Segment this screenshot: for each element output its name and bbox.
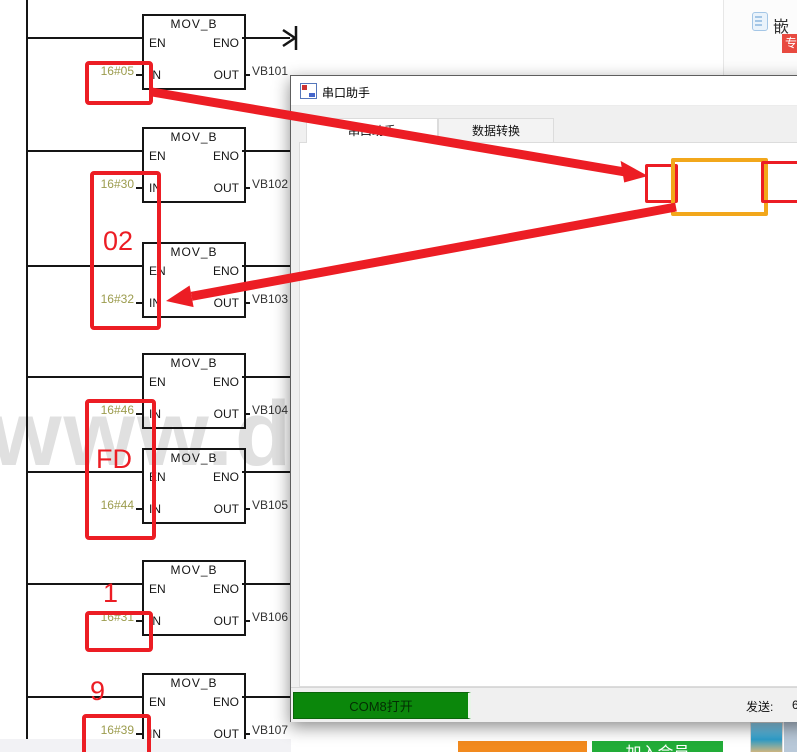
out-pin: OUT [214,502,239,516]
page: www.doc MOV_B EN ENO IN OUT 16#05 VB101 … [0,0,797,752]
dialog-titlebar[interactable]: 串口助手 [291,76,797,106]
join-member-button[interactable]: 加入会员 [592,741,723,752]
out-pin: OUT [214,181,239,195]
rung-wire [26,265,143,267]
in-wire [136,620,142,622]
photo-thumbnail[interactable] [750,722,783,752]
block-title: MOV_B [144,451,244,465]
rung-wire [26,471,143,473]
input-constant[interactable]: 16#31 [58,610,134,624]
block-title: MOV_B [144,245,244,259]
power-rail [26,0,28,739]
input-constant[interactable]: 16#44 [58,498,134,512]
output-operand[interactable]: VB104 [252,403,288,417]
bottom-page-strip [0,739,291,752]
rung-wire [26,583,143,585]
block-title: MOV_B [144,356,244,370]
eno-wire [242,376,290,378]
in-pin: IN [149,614,161,628]
in-wire [136,74,142,76]
input-constant[interactable]: 16#39 [58,723,134,737]
out-wire [244,302,250,304]
in-pin: IN [149,296,161,310]
output-operand[interactable]: VB101 [252,64,288,78]
eno-pin: ENO [213,264,239,278]
mov-b-block[interactable]: MOV_B EN ENO IN OUT [142,560,246,636]
orange-action-button[interactable] [458,741,587,752]
eno-wire [242,265,290,267]
block-title: MOV_B [144,676,244,690]
en-pin: EN [149,36,166,50]
output-operand[interactable]: VB105 [252,498,288,512]
eno-wire [242,696,290,698]
in-wire [136,413,142,415]
rung-wire [26,150,143,152]
mov-b-block[interactable]: MOV_B EN ENO IN OUT [142,353,246,429]
input-constant[interactable]: 16#05 [58,64,134,78]
input-constant[interactable]: 16#32 [58,292,134,306]
tab-serial-assistant[interactable]: 串口助手 [306,118,438,143]
out-wire [244,413,250,415]
mov-b-block[interactable]: MOV_B EN ENO IN OUT [142,127,246,203]
in-wire [136,508,142,510]
mov-b-block[interactable]: MOV_B EN ENO IN OUT [142,242,246,318]
eno-pin: ENO [213,695,239,709]
out-wire [244,508,250,510]
eno-wire [242,150,290,152]
in-pin: IN [149,181,161,195]
block-title: MOV_B [144,17,244,31]
en-pin: EN [149,264,166,278]
en-pin: EN [149,149,166,163]
eno-pin: ENO [213,582,239,596]
in-wire [136,187,142,189]
mov-b-block[interactable]: MOV_B EN ENO IN OUT [142,673,246,749]
eno-pin: ENO [213,36,239,50]
eno-pin: ENO [213,470,239,484]
rung-wire [26,696,143,698]
eno-wire [242,471,290,473]
sent-count-value: 6 [792,698,797,712]
in-wire [136,733,142,735]
dialog-title: 串口助手 [322,84,370,101]
out-pin: OUT [214,68,239,82]
mov-b-block[interactable]: MOV_B EN ENO IN OUT [142,14,246,90]
in-pin: IN [149,68,161,82]
out-pin: OUT [214,614,239,628]
sent-count-label: 发送: [746,698,773,715]
eno-pin: ENO [213,149,239,163]
out-wire [244,733,250,735]
serial-assistant-dialog: 串口助手 串口助手 数据转换 串口设置 串口: COM8 波特率: 9600 数… [290,75,797,722]
out-pin: OUT [214,296,239,310]
out-pin: OUT [214,407,239,421]
block-title: MOV_B [144,563,244,577]
eno-wire [242,37,290,39]
out-wire [244,74,250,76]
tab-page [299,142,797,687]
com-open-button[interactable]: COM8打开 [293,692,471,719]
out-wire [244,187,250,189]
dialog-statusbar: COM8打开 发送: 6 [291,687,797,722]
output-operand[interactable]: VB106 [252,610,288,624]
rung-wire [26,37,143,39]
output-operand[interactable]: VB102 [252,177,288,191]
block-title: MOV_B [144,130,244,144]
tab-data-convert[interactable]: 数据转换 [438,118,554,143]
mov-b-block[interactable]: MOV_B EN ENO IN OUT [142,448,246,524]
in-pin: IN [149,407,161,421]
en-pin: EN [149,582,166,596]
rung-wire [26,376,143,378]
out-wire [244,620,250,622]
en-pin: EN [149,375,166,389]
output-operand[interactable]: VB103 [252,292,288,306]
in-wire [136,302,142,304]
eno-pin: ENO [213,375,239,389]
en-pin: EN [149,470,166,484]
output-operand[interactable]: VB107 [252,723,288,737]
en-pin: EN [149,695,166,709]
winform-app-icon [300,83,317,99]
in-pin: IN [149,502,161,516]
input-constant[interactable]: 16#30 [58,177,134,191]
photo-thumbnail[interactable] [784,722,797,752]
input-constant[interactable]: 16#46 [58,403,134,417]
eno-wire [242,583,290,585]
